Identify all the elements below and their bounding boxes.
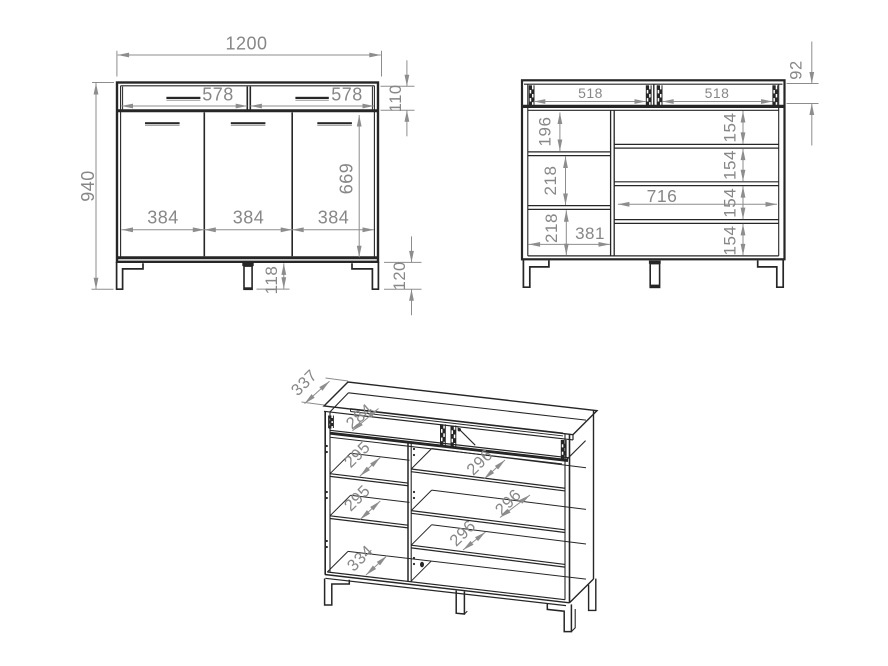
- svg-text:196: 196: [536, 117, 555, 147]
- svg-text:92: 92: [788, 60, 806, 79]
- svg-text:295: 295: [341, 438, 374, 471]
- svg-text:518: 518: [578, 85, 603, 101]
- svg-text:154: 154: [721, 226, 740, 256]
- svg-text:669: 669: [337, 163, 357, 195]
- svg-text:518: 518: [705, 85, 730, 101]
- svg-text:154: 154: [721, 188, 740, 218]
- svg-text:578: 578: [202, 85, 234, 105]
- svg-text:384: 384: [318, 208, 350, 228]
- svg-text:384: 384: [233, 208, 265, 228]
- svg-text:940: 940: [78, 170, 98, 202]
- svg-text:295: 295: [341, 482, 374, 515]
- svg-text:218: 218: [541, 166, 560, 196]
- svg-text:384: 384: [147, 208, 179, 228]
- svg-text:120: 120: [391, 261, 409, 290]
- svg-text:1200: 1200: [225, 34, 267, 54]
- svg-text:154: 154: [721, 113, 740, 143]
- svg-text:296: 296: [492, 486, 525, 519]
- svg-text:118: 118: [262, 266, 281, 295]
- svg-text:381: 381: [575, 224, 605, 243]
- svg-text:110: 110: [387, 84, 405, 112]
- svg-text:154: 154: [721, 150, 740, 180]
- svg-text:578: 578: [331, 85, 363, 105]
- svg-text:337: 337: [288, 366, 321, 399]
- svg-text:218: 218: [542, 213, 561, 243]
- svg-text:716: 716: [647, 186, 678, 206]
- svg-text:284: 284: [343, 400, 377, 433]
